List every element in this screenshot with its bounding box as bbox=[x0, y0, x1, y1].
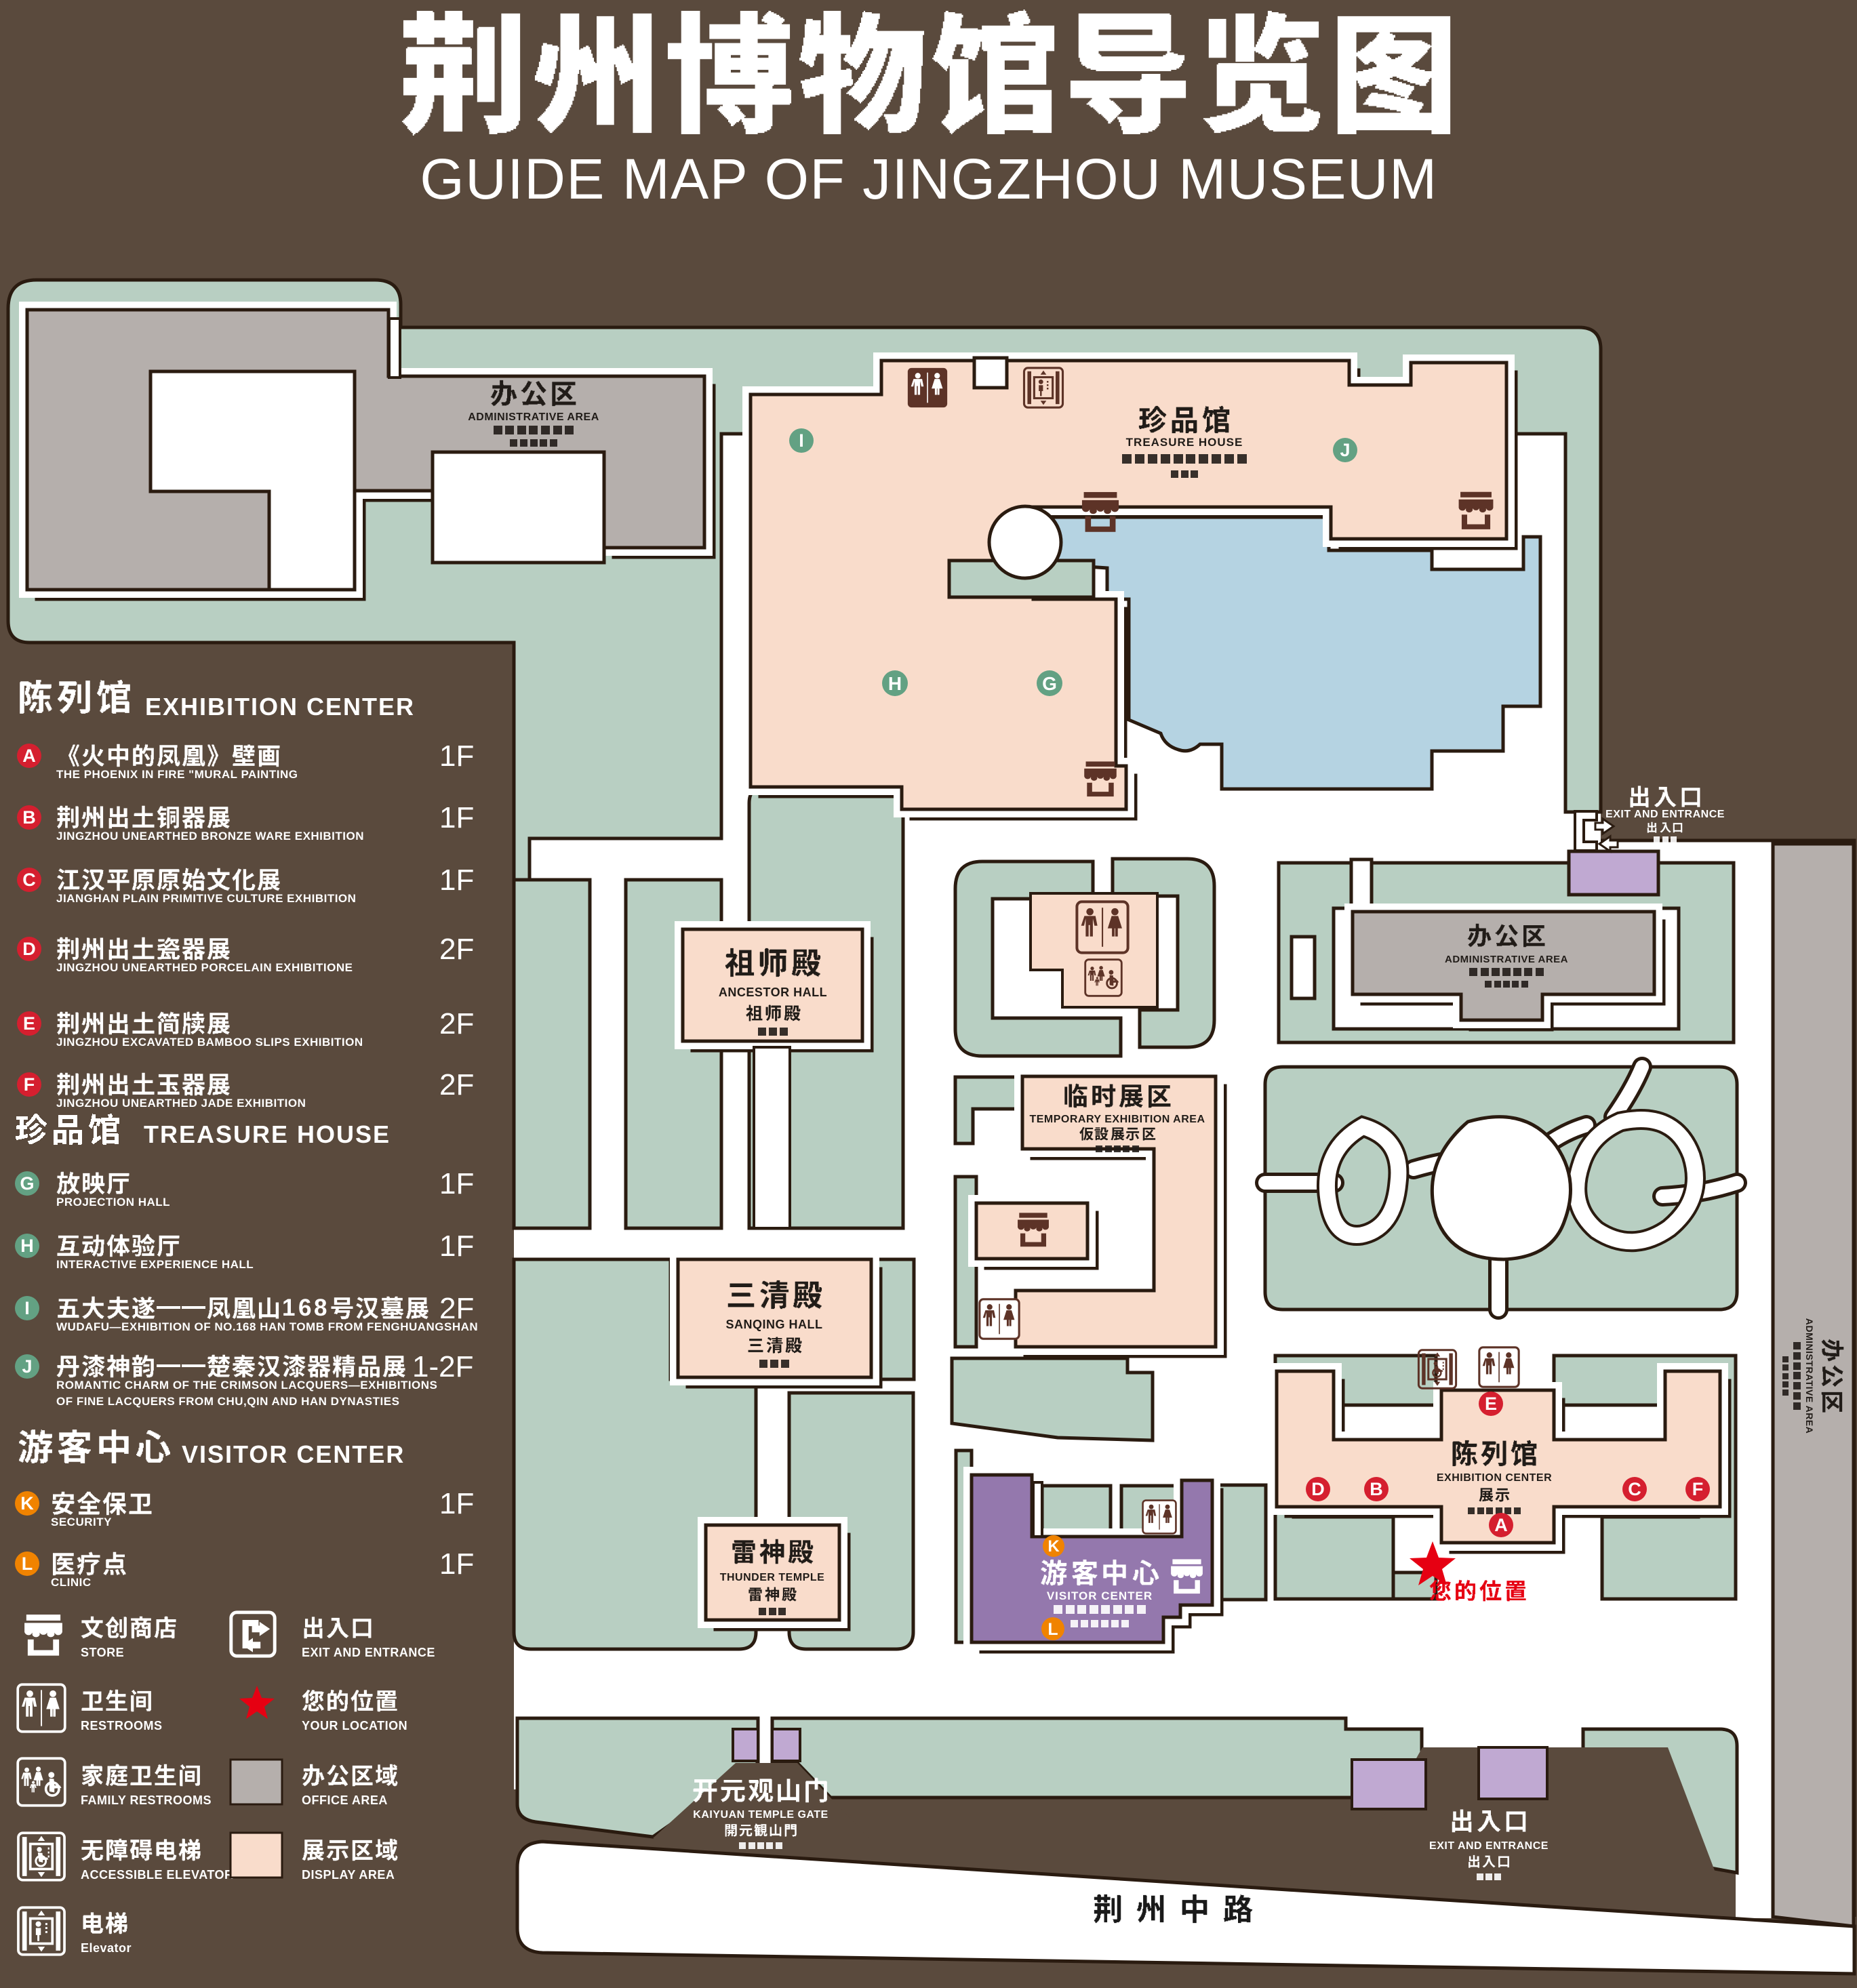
svg-text:TREASURE HOUSE: TREASURE HOUSE bbox=[144, 1120, 391, 1148]
svg-text:H: H bbox=[20, 1236, 34, 1256]
svg-text:JINGZHOU UNEARTHED JADE EXHIBI: JINGZHOU UNEARTHED JADE EXHIBITION bbox=[56, 1097, 306, 1110]
svg-text:1F: 1F bbox=[439, 739, 474, 773]
svg-text:B: B bbox=[22, 807, 36, 828]
svg-text:STORE: STORE bbox=[81, 1646, 124, 1659]
svg-text:E: E bbox=[23, 1013, 35, 1034]
svg-text:EXIT AND ENTRANCE: EXIT AND ENTRANCE bbox=[1605, 809, 1725, 820]
svg-text:CLINIC: CLINIC bbox=[51, 1576, 92, 1589]
svg-text:2F: 2F bbox=[439, 933, 474, 966]
svg-text:ANCESTOR HALL: ANCESTOR HALL bbox=[719, 986, 827, 999]
svg-text:JINGZHOU UNEARTHED PORCELAIN E: JINGZHOU UNEARTHED PORCELAIN EXHIBITIONE bbox=[56, 961, 353, 974]
svg-text:L: L bbox=[1047, 1620, 1058, 1639]
svg-text:G: G bbox=[20, 1173, 34, 1194]
svg-text:ADMINISTRATIVE AREA: ADMINISTRATIVE AREA bbox=[1804, 1318, 1815, 1434]
svg-text:SANQING HALL: SANQING HALL bbox=[726, 1318, 823, 1331]
svg-text:B: B bbox=[1370, 1479, 1383, 1499]
svg-text:2F: 2F bbox=[439, 1068, 474, 1101]
svg-text:A: A bbox=[22, 746, 36, 766]
svg-text:RESTROOMS: RESTROOMS bbox=[81, 1719, 163, 1732]
svg-text:F: F bbox=[24, 1074, 35, 1095]
svg-text:J: J bbox=[22, 1356, 32, 1377]
svg-text:J: J bbox=[1340, 440, 1350, 460]
svg-text:E: E bbox=[1485, 1394, 1497, 1414]
svg-text:A: A bbox=[1494, 1515, 1508, 1535]
svg-text:C: C bbox=[22, 870, 36, 890]
svg-text:1F: 1F bbox=[439, 801, 474, 834]
svg-text:2F: 2F bbox=[439, 1292, 474, 1325]
svg-text:EXHIBITION CENTER: EXHIBITION CENTER bbox=[1437, 1472, 1552, 1484]
svg-text:8: 8 bbox=[314, 1295, 327, 1321]
svg-text:1: 1 bbox=[282, 1295, 295, 1321]
svg-text:JINGZHOU EXCAVATED BAMBOO SLIP: JINGZHOU EXCAVATED BAMBOO SLIPS EXHIBITI… bbox=[56, 1036, 363, 1049]
svg-text:I: I bbox=[799, 430, 804, 451]
svg-text:I: I bbox=[24, 1298, 30, 1318]
svg-text:TREASURE HOUSE: TREASURE HOUSE bbox=[1126, 436, 1243, 449]
svg-text:D: D bbox=[22, 939, 36, 959]
svg-text:1F: 1F bbox=[439, 1167, 474, 1200]
svg-text:VISITOR CENTER: VISITOR CENTER bbox=[182, 1440, 405, 1468]
svg-text:K: K bbox=[1047, 1537, 1060, 1556]
svg-text:H: H bbox=[888, 673, 902, 694]
svg-text:THE PHOENIX IN FIRE "MURAL PAI: THE PHOENIX IN FIRE "MURAL PAINTING bbox=[56, 768, 298, 781]
svg-text:1F: 1F bbox=[439, 864, 474, 897]
svg-text:6: 6 bbox=[298, 1295, 311, 1321]
svg-text:ADMINISTRATIVE AREA: ADMINISTRATIVE AREA bbox=[1445, 954, 1568, 965]
svg-text:EXHIBITION CENTER: EXHIBITION CENTER bbox=[145, 693, 415, 721]
svg-text:1-2F: 1-2F bbox=[412, 1350, 473, 1383]
svg-text:EXIT AND ENTRANCE: EXIT AND ENTRANCE bbox=[302, 1646, 435, 1659]
svg-text:PROJECTION HALL: PROJECTION HALL bbox=[56, 1196, 170, 1209]
svg-text:GUIDE MAP OF JINGZHOU MUSEUM: GUIDE MAP OF JINGZHOU MUSEUM bbox=[420, 147, 1437, 211]
svg-text:WUDAFU—EXHIBITION OF NO.168 HA: WUDAFU—EXHIBITION OF NO.168 HAN TOMB FRO… bbox=[56, 1320, 478, 1333]
svg-text:ACCESSIBLE ELEVATOR: ACCESSIBLE ELEVATOR bbox=[81, 1868, 234, 1882]
svg-text:JIANGHAN PLAIN PRIMITIVE CULTU: JIANGHAN PLAIN PRIMITIVE CULTURE EXHIBIT… bbox=[56, 892, 356, 905]
svg-text:1F: 1F bbox=[439, 1230, 474, 1263]
svg-text:TEMPORARY EXHIBITION AREA: TEMPORARY EXHIBITION AREA bbox=[1029, 1114, 1205, 1125]
svg-text:FAMILY RESTROOMS: FAMILY RESTROOMS bbox=[81, 1793, 212, 1807]
svg-text:JINGZHOU UNEARTHED BRONZE WARE: JINGZHOU UNEARTHED BRONZE WARE EXHIBITIO… bbox=[56, 830, 364, 843]
svg-text:1F: 1F bbox=[439, 1547, 474, 1581]
svg-text:EXIT AND ENTRANCE: EXIT AND ENTRANCE bbox=[1429, 1840, 1549, 1852]
svg-text:VISITOR CENTER: VISITOR CENTER bbox=[1047, 1589, 1153, 1602]
svg-text:OF FINE LACQUERS FROM CHU,QIN: OF FINE LACQUERS FROM CHU,QIN AND HAN DY… bbox=[56, 1395, 399, 1408]
svg-text:L: L bbox=[22, 1554, 33, 1574]
svg-text:SECURITY: SECURITY bbox=[51, 1516, 112, 1528]
svg-text:2F: 2F bbox=[439, 1007, 474, 1040]
svg-text:THUNDER TEMPLE: THUNDER TEMPLE bbox=[720, 1572, 825, 1583]
svg-text:D: D bbox=[1311, 1479, 1325, 1499]
svg-text:F: F bbox=[1692, 1479, 1704, 1499]
svg-text:ADMINISTRATIVE AREA: ADMINISTRATIVE AREA bbox=[468, 411, 599, 423]
svg-text:C: C bbox=[1628, 1479, 1641, 1499]
svg-text:KAIYUAN TEMPLE GATE: KAIYUAN TEMPLE GATE bbox=[693, 1809, 828, 1821]
svg-text:G: G bbox=[1042, 673, 1057, 694]
svg-text:1F: 1F bbox=[439, 1487, 474, 1520]
svg-text:YOUR LOCATION: YOUR LOCATION bbox=[302, 1719, 407, 1732]
svg-text:INTERACTIVE EXPERIENCE HALL: INTERACTIVE EXPERIENCE HALL bbox=[56, 1258, 254, 1271]
svg-text:DISPLAY AREA: DISPLAY AREA bbox=[302, 1868, 395, 1882]
svg-text:K: K bbox=[20, 1493, 34, 1514]
svg-text:OFFICE AREA: OFFICE AREA bbox=[302, 1793, 388, 1807]
svg-text:Elevator: Elevator bbox=[81, 1941, 132, 1955]
svg-text:ROMANTIC CHARM OF THE CRIMSON: ROMANTIC CHARM OF THE CRIMSON LACQUERS—E… bbox=[56, 1379, 437, 1392]
